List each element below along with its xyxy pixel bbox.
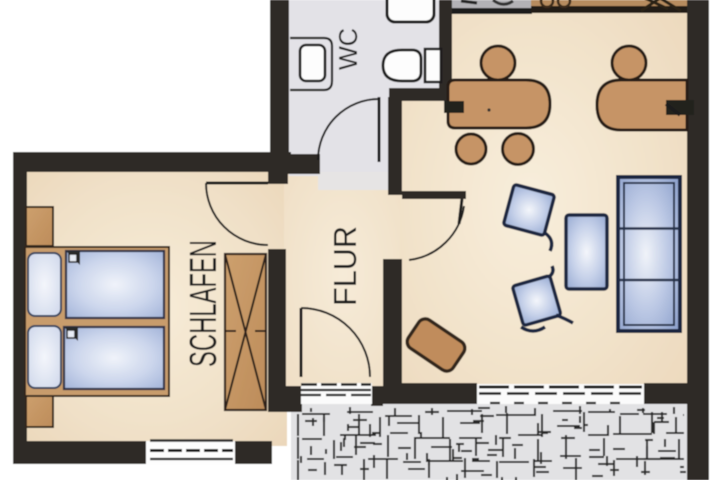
svg-text:WC: WC [333, 28, 363, 70]
svg-text:SCHLAFEN: SCHLAFEN [183, 240, 225, 367]
svg-text:FLUR: FLUR [327, 226, 363, 306]
